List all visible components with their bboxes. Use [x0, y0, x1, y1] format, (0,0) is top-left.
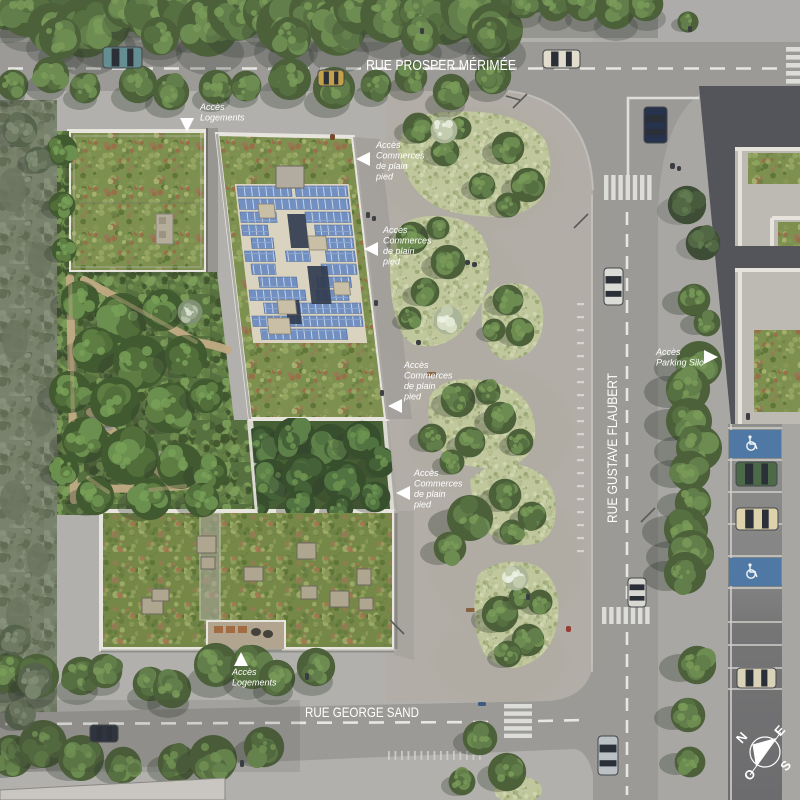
svg-text:RUE GUSTAVE FLAUBERT: RUE GUSTAVE FLAUBERT	[604, 373, 620, 523]
svg-text:RUE GEORGE SAND: RUE GEORGE SAND	[305, 704, 419, 720]
svg-text:RUE PROSPER MÉRIMÉE: RUE PROSPER MÉRIMÉE	[366, 57, 516, 74]
